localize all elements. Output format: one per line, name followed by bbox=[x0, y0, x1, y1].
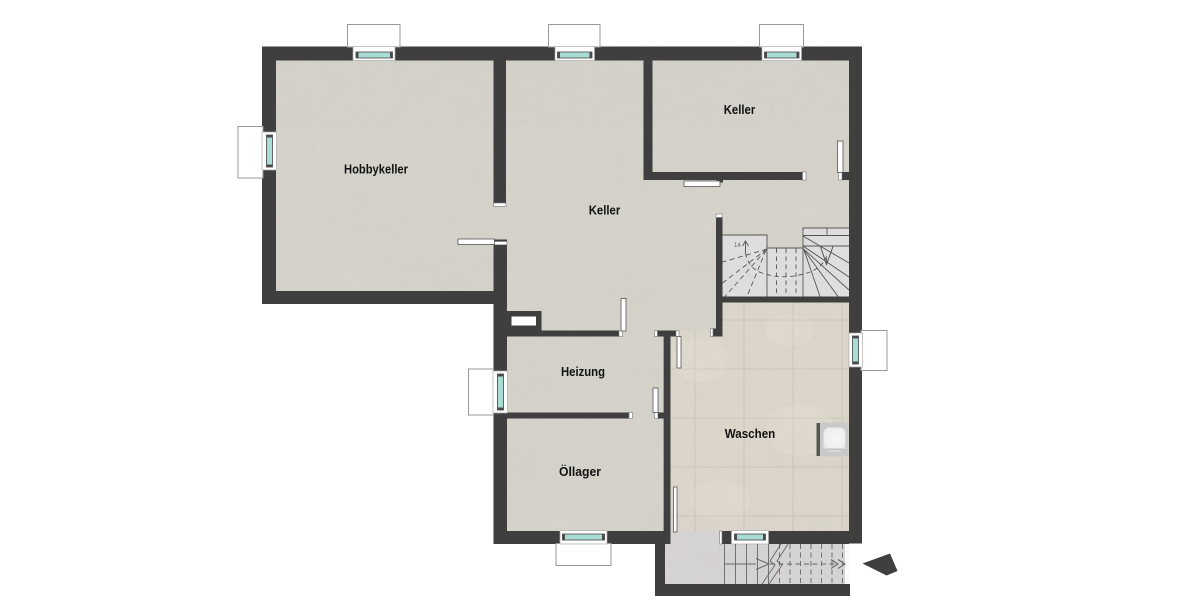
svg-text:Keller: Keller bbox=[589, 203, 621, 218]
svg-text:14: 14 bbox=[734, 243, 741, 249]
svg-text:Waschen: Waschen bbox=[725, 426, 776, 441]
svg-text:Öllager: Öllager bbox=[559, 464, 601, 479]
svg-text:Hobbykeller: Hobbykeller bbox=[344, 162, 408, 177]
svg-text:Heizung: Heizung bbox=[561, 364, 605, 379]
svg-text:Keller: Keller bbox=[724, 102, 756, 117]
